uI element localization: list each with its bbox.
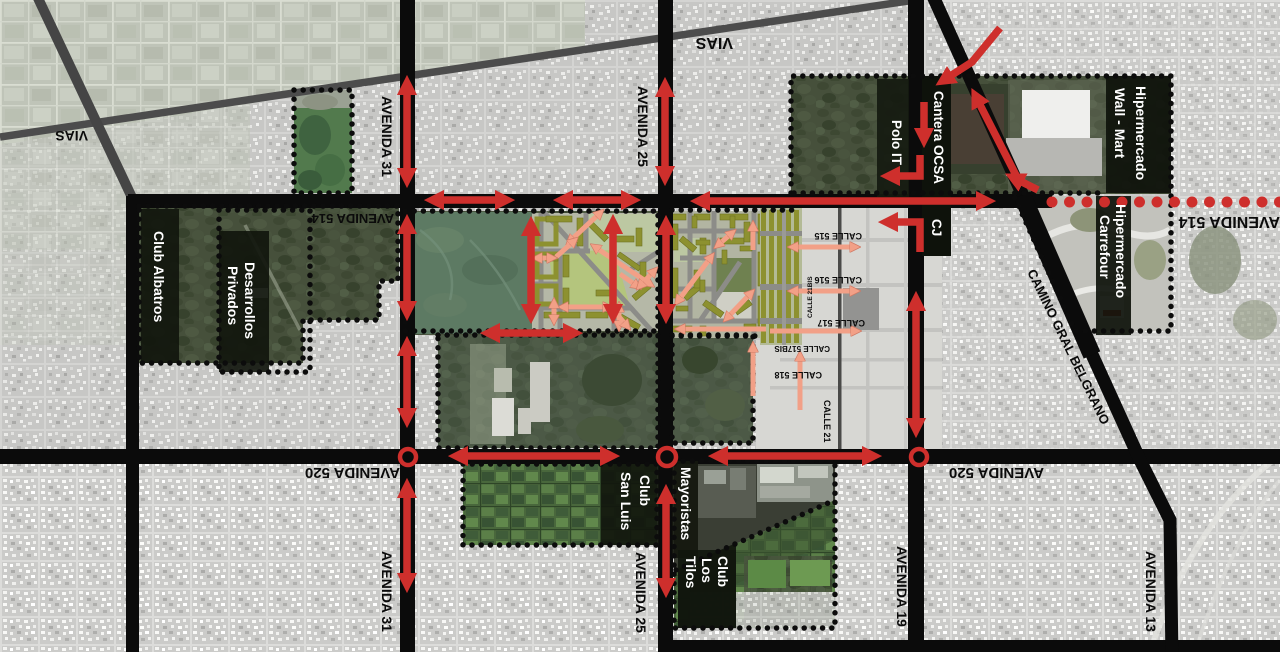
svg-text:Wall - Mart: Wall - Mart [1112, 88, 1128, 159]
svg-text:Carrefour: Carrefour [1097, 215, 1113, 279]
svg-text:VIAS: VIAS [695, 34, 733, 51]
svg-text:AVENIDA 25: AVENIDA 25 [633, 552, 649, 633]
svg-text:CALLE 518: CALLE 518 [774, 370, 822, 380]
svg-text:AVENIDA 520: AVENIDA 520 [305, 464, 400, 481]
svg-text:Privados: Privados [225, 266, 241, 325]
svg-text:CALLE 517: CALLE 517 [817, 318, 865, 328]
svg-text:AVENIDA 13: AVENIDA 13 [1143, 551, 1159, 632]
svg-text:AVENIDA 31: AVENIDA 31 [379, 96, 395, 177]
svg-text:Hipermercado: Hipermercado [1133, 86, 1149, 180]
svg-text:AVENIDA 514: AVENIDA 514 [1179, 213, 1280, 230]
svg-text:CALLE 21BIS: CALLE 21BIS [807, 276, 814, 318]
svg-text:Tilos: Tilos [683, 556, 699, 589]
svg-text:CALLE 515: CALLE 515 [814, 231, 862, 241]
svg-text:AVENIDA 520: AVENIDA 520 [949, 464, 1044, 481]
svg-text:Club Albatros: Club Albatros [151, 231, 167, 322]
svg-text:San Luis: San Luis [618, 472, 634, 531]
svg-text:CALLE 21: CALLE 21 [822, 400, 832, 443]
svg-text:AVENIDA 31: AVENIDA 31 [379, 551, 395, 632]
svg-text:VIAS: VIAS [55, 128, 88, 144]
svg-text:CJ: CJ [929, 219, 944, 236]
svg-text:Club: Club [637, 475, 653, 506]
svg-text:AVENIDA 19: AVENIDA 19 [894, 546, 910, 627]
svg-text:AVENIDA 25: AVENIDA 25 [635, 86, 651, 167]
svg-text:CALLE 517BIS: CALLE 517BIS [774, 344, 830, 353]
svg-text:Polo IT: Polo IT [889, 120, 904, 166]
svg-text:Los: Los [699, 558, 715, 583]
svg-text:Mayoristas: Mayoristas [678, 467, 694, 540]
svg-text:Hipermercado: Hipermercado [1113, 204, 1129, 298]
svg-text:Cantera OCSA: Cantera OCSA [931, 91, 946, 184]
svg-text:Club: Club [715, 556, 731, 587]
svg-text:CALLE 516: CALLE 516 [814, 275, 862, 285]
svg-text:Desarrollos: Desarrollos [242, 262, 258, 339]
svg-text:AVENIDA 514: AVENIDA 514 [311, 211, 394, 226]
